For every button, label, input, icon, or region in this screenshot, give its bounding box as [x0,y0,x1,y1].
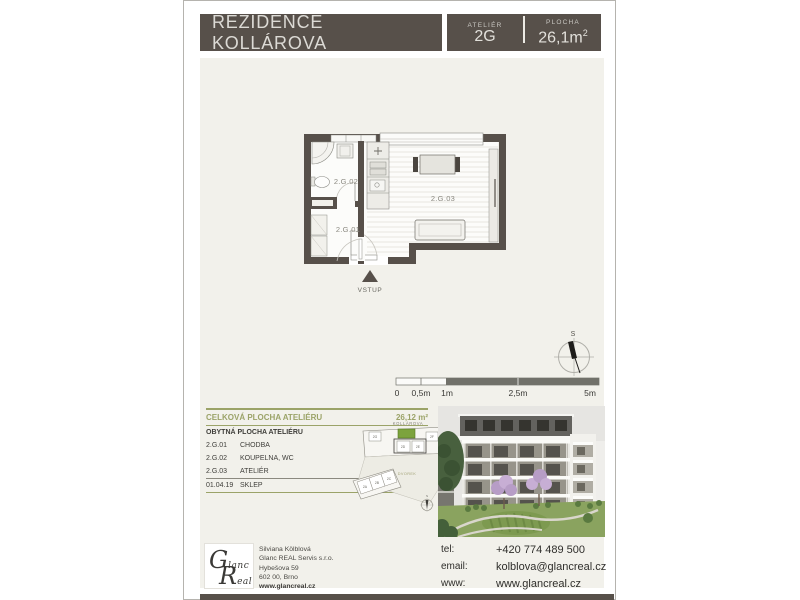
area-value: 26,1m2 [538,26,587,45]
svg-text:2B: 2B [375,481,380,485]
highlighted-unit [398,429,415,438]
hall-counter-top [312,200,333,206]
room-label-atelier: 2.G.03 [431,194,455,203]
courtyard-label: DVOREK [398,472,417,476]
email-value[interactable]: kolblova@glancreal.cz [496,561,606,573]
project-title-box: REZIDENCE KOLLÁROVA [200,14,442,51]
unit-cell: ATELIÉR 2G [447,14,523,51]
agent-company: Glanc REAL Servis s.r.o. [259,554,334,563]
unit-value: 2G [474,29,495,44]
kitchen-counter [367,142,389,209]
svg-text:S: S [426,494,428,498]
bathroom-door-opening [335,200,355,208]
svg-text:2C: 2C [387,477,392,481]
agent-website[interactable]: www.glancreal.cz [259,582,334,591]
render-main-building [458,414,574,518]
table-icon [420,155,455,174]
unit-info-box: ATELIÉR 2G PLOCHA 26,1m2 [447,14,601,51]
floor [311,141,498,257]
agent-street: Hybešova 59 [259,564,334,573]
scale-tick-1: 1m [441,388,453,398]
agent-info: Silviana Kölblová Glanc REAL Servis s.r.… [259,545,334,591]
svg-text:2D: 2D [401,445,406,449]
document-page: REZIDENCE KOLLÁROVA ATELIÉR 2G PLOCHA 26… [183,0,616,600]
tel-label: tel: [441,544,496,556]
contact-email-row: email: kolblova@glancreal.cz [441,561,606,573]
scale-tick-05: 0,5m [412,388,431,398]
screenshot-canvas: REZIDENCE KOLLÁROVA ATELIÉR 2G PLOCHA 26… [0,0,800,600]
room-label-bathroom: 2.G.02 [334,177,358,186]
scale-tick-25: 2,5m [509,388,528,398]
render-garden [438,500,605,537]
floor-plan: 2.G.02 2.G.01 2.G.03 VSTUP 0 0,5m 1m 2,5… [200,58,604,406]
svg-text:2G: 2G [373,435,378,439]
entrance-arrow-icon [362,270,378,282]
compass-icon: S [554,331,594,376]
footer-bar [200,594,614,600]
site-plan: KOLLÁROVA DVOREK 2G 2F 2D 2E [341,409,451,521]
email-label: email: [441,561,496,573]
svg-text:2A: 2A [363,485,368,489]
project-title: REZIDENCE KOLLÁROVA [212,12,442,54]
stove-icon [370,162,386,168]
wardrobe-icon [489,149,498,242]
www-value[interactable]: www.glancreal.cz [496,578,581,590]
agent-city: 602 00, Brno [259,573,334,582]
dining-set [413,155,460,174]
svg-text:2F: 2F [430,435,434,439]
agent-name: Silviana Kölblová [259,545,334,554]
toilet-icon [315,177,330,188]
room-label-hall: 2.G.01 [336,225,360,234]
scale-bar: 0 0,5m 1m 2,5m 5m [395,378,599,398]
building-render [438,406,605,537]
svg-text:2E: 2E [416,445,421,449]
tel-value: +420 774 489 500 [496,544,585,556]
room-door-leaf [359,239,362,259]
area-cell: PLOCHA 26,1m2 [525,14,601,51]
entrance-label: VSTUP [358,287,383,294]
street-label: KOLLÁROVA [393,421,423,426]
www-label: www: [441,578,496,590]
sofa-icon [415,220,465,240]
contact-www-row: www: www.glancreal.cz [441,578,581,590]
scale-tick-0: 0 [395,388,400,398]
contact-tel-row: tel: +420 774 489 500 [441,544,585,556]
sink-icon [370,180,385,191]
compass-north-label: S [571,331,576,338]
area-label: PLOCHA [546,19,580,26]
scale-tick-5: 5m [584,388,596,398]
total-area-label: CELKOVÁ PLOCHA ATELIÉRU [206,413,322,422]
agency-logo: Glanc Real [204,543,254,589]
